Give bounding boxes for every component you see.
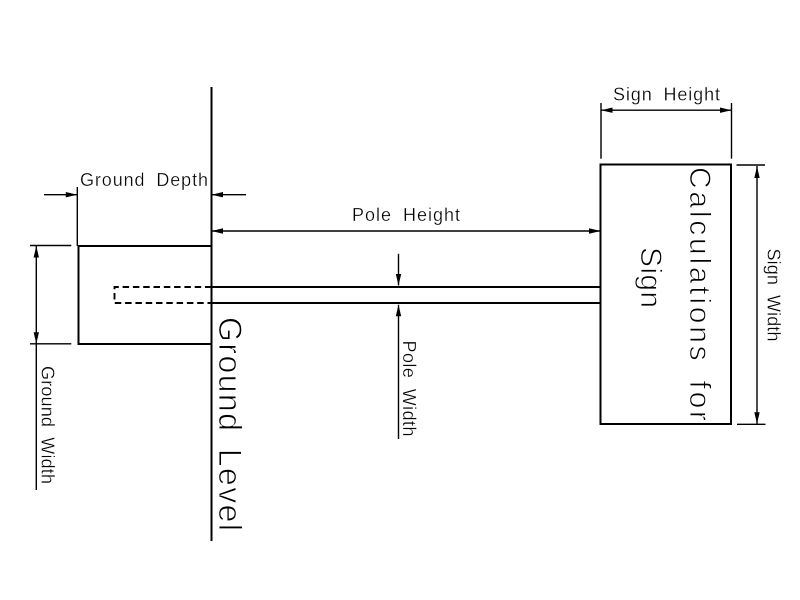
svg-text:Sign Height: Sign Height — [613, 85, 720, 105]
svg-text:Pole Height: Pole Height — [352, 205, 460, 225]
svg-text:Calculations for: Calculations for — [683, 167, 716, 421]
svg-text:Ground Depth: Ground Depth — [80, 170, 208, 190]
svg-text:Sign: Sign — [634, 247, 667, 309]
svg-text:Ground Width: Ground Width — [38, 366, 58, 484]
svg-text:Sign Width: Sign Width — [764, 249, 784, 342]
svg-text:Pole Width: Pole Width — [399, 341, 419, 437]
svg-text:Ground Level: Ground Level — [212, 317, 248, 531]
